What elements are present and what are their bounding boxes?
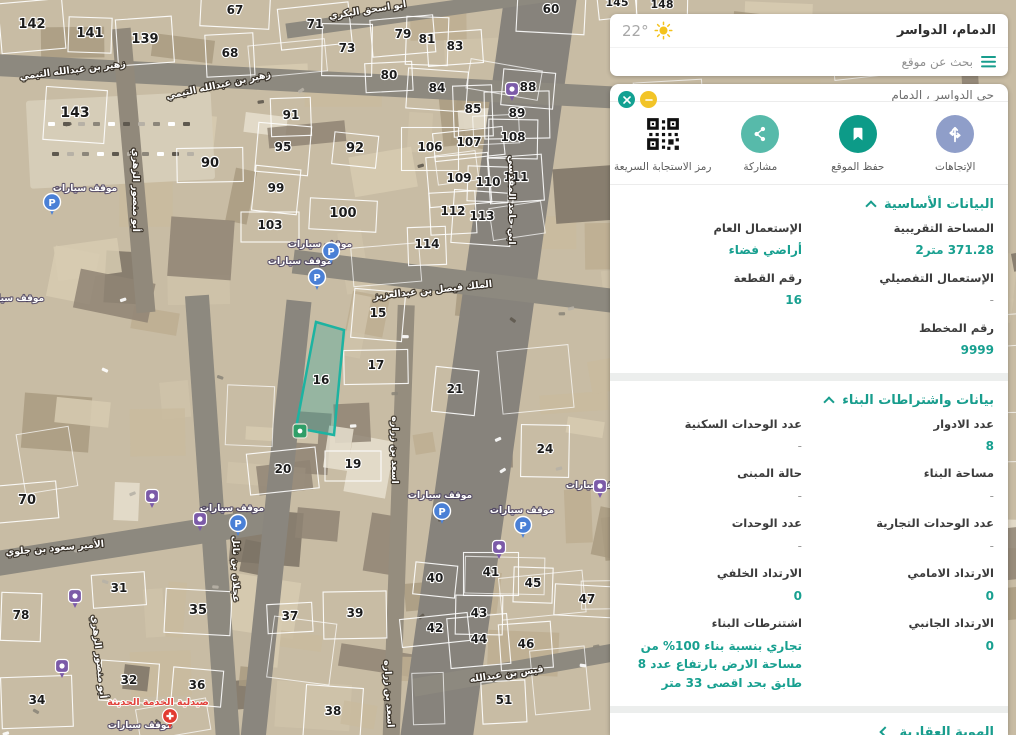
field-label: حالة المبنى [624,466,802,480]
parcel-number: 43 [471,606,488,620]
parcel-number: 85 [465,102,482,116]
parcel-number: 42 [427,621,444,635]
parking-lot-label: موقف سيارات [0,294,44,304]
close-button[interactable] [618,91,635,108]
section-title: البيانات الأساسية [884,197,994,212]
section-title: بيانات واشتراطات البناء [842,393,994,408]
action-label: مشاركة [743,161,777,174]
svg-text:P: P [438,507,445,518]
field-value: - [816,291,994,310]
data-field: اشتنرطات البناء تجاري بنسبة بناء 100% من… [624,616,802,692]
parking-lot-label: موقف سيارات [288,240,352,250]
parcel-number: 17 [368,358,385,372]
parcel-number: 109 [446,171,471,185]
bookmark-icon [839,115,877,153]
hamburger-icon [981,56,996,68]
data-field: الإستعمال العام أراضي فضاء [624,221,802,260]
app-window: 1451481421411396768143919590991037173798… [0,0,1016,735]
svg-text:P: P [234,519,241,530]
parcel-number: 36 [189,678,206,692]
parking-lot-label: موقف سيارات [53,184,117,194]
street-label: أبو منصور الزهري [130,148,143,232]
parcel-number: 83 [447,39,464,53]
parcel-number: 100 [329,206,356,221]
action-label: رمز الاستجابة السريعة [614,161,711,174]
field-value: 371.28 متر2 [816,241,994,260]
data-field: الارتداد الامامي 0 [816,566,994,605]
data-field: عدد الوحدات التجارية - [816,516,994,555]
parcel-number: 34 [29,693,46,707]
qr-icon [644,115,682,153]
field-value: 8 [816,437,994,456]
svg-text:P: P [48,198,55,209]
address-clipped: حي الدواسر ، الدمام [610,84,1008,101]
search-input[interactable]: بحث عن موقع [901,55,973,69]
parcel-number: 39 [347,606,364,620]
parcel-number: 89 [509,106,526,120]
parking-lot-label: موقف سيارات [200,504,264,514]
parcel-number: 88 [520,80,537,94]
temperature-value: 22° [622,22,649,40]
field-value: 0 [816,637,994,656]
data-field: الارتداد الجانبي 0 [816,616,994,692]
parcel-number: 81 [419,32,436,46]
parcel-number: 60 [543,2,560,16]
data-field: حالة المبنى - [624,466,802,505]
field-label: رقم القطعة [624,271,802,285]
field-value: أراضي فضاء [624,241,802,260]
search-row[interactable]: بحث عن موقع [610,47,1008,76]
action-share[interactable]: مشاركة [712,115,810,174]
parcel-number: 24 [537,442,554,456]
location-title: الدمام، الدواسر [897,23,996,38]
parcel-number: 143 [60,105,89,121]
parcel-number: 108 [500,130,525,144]
svg-text:P: P [519,521,526,532]
svg-text:P: P [327,247,334,258]
poi-pin-green[interactable] [293,424,307,438]
parcel-number: 44 [471,632,488,646]
pharmacy-label: صيدلية الخدمة الحديثة [107,697,209,708]
field-label: الارتداد الامامي [816,566,994,580]
data-field: مساحة البناء - [816,466,994,505]
parcel-number: 73 [339,41,356,55]
field-label: رقم المخطط [816,321,994,335]
map-header-card: الدمام، الدواسر 22° بحث عن موقع [610,14,1008,76]
field-value: - [816,537,994,556]
field-label: عدد الوحدات التجارية [816,516,994,530]
data-field: رقم القطعة 16 [624,271,802,310]
parcel-number: 35 [189,603,207,618]
parcel-number: 145 [606,0,629,9]
data-field: عدد الوحدات - [624,516,802,555]
parcel-number: 19 [345,457,362,471]
street-label: ابي حامد المقدسي [506,155,517,244]
parcel-number: 45 [525,576,542,590]
data-field: الإستعمال التفصيلي - [816,271,994,310]
selected-parcel-number: 16 [313,373,330,387]
parcel-number: 80 [381,68,398,82]
collapsed-section-row[interactable]: الهوية العقارية [610,713,1008,735]
parcel-number: 46 [518,637,535,651]
parcel-number: 139 [131,32,158,47]
field-value: - [816,487,994,506]
street-label: اسعد بن زراره [389,416,400,483]
parking-lot-label: موقف سيارات [268,257,332,267]
parcel-number: 40 [427,571,444,585]
field-label: الإستعمال العام [624,221,802,235]
parcel-number: 92 [346,141,364,156]
parcel-number: 79 [395,27,412,41]
field-label: الارتداد الجانبي [816,616,994,630]
field-value: 16 [624,291,802,310]
parcel-number: 32 [121,673,138,687]
street-label: عجلان بن نائل [230,536,241,603]
parcel-number: 67 [227,3,244,17]
parcel-number: 41 [483,565,500,579]
field-value: تجاري بنسبة بناء 100% من مساحة الارض بار… [624,637,802,693]
field-label: عدد الوحدات السكنية [624,417,802,431]
parcel-number: 141 [76,26,103,41]
parcel-number: 91 [283,108,300,122]
data-field: عدد الوحدات السكنية - [624,417,802,456]
data-field: الارتداد الخلفي 0 [624,566,802,605]
action-qr[interactable]: رمز الاستجابة السريعة [614,115,712,174]
parcel-number: 113 [469,209,494,223]
basic-data-section: البيانات الأساسية المساحة التقريبية 371.… [610,185,1008,373]
parcel-number: 90 [201,156,219,171]
parcel-number: 112 [440,204,465,218]
field-value: - [624,537,802,556]
weather-widget: 22° [622,21,673,40]
parcel-number: 84 [429,81,446,95]
parking-lot-label: موقف سيارات [490,506,554,516]
collapsed-section-title: الهوية العقارية [899,725,994,735]
directions-icon [936,115,974,153]
field-label: الإستعمال التفصيلي [816,271,994,285]
parking-lot-label: موقف سيارات [408,491,472,501]
parcel-number: 99 [268,181,285,195]
parking-lot-label: موقف سيارات [108,721,172,731]
field-value: 9999 [816,341,994,360]
sun-icon [654,21,673,40]
building-data-header[interactable]: بيانات واشتراطات البناء [610,381,1008,415]
field-label: اشتنرطات البناء [624,616,802,630]
chevron-left-icon [880,726,891,735]
field-label: الارتداد الخلفي [624,566,802,580]
field-label: مساحة البناء [816,466,994,480]
parcel-number: 70 [18,493,36,508]
action-directions[interactable]: الإتجاهات [907,115,1005,174]
building-data-section: بيانات واشتراطات البناء عدد الادوار 8 عد… [610,381,1008,706]
data-field: عدد الادوار 8 [816,417,994,456]
parcel-number: 51 [496,693,513,707]
parcel-number: 68 [222,46,239,60]
data-field: رقم المخطط 9999 [816,321,994,360]
share-icon [741,115,779,153]
data-field: المساحة التقريبية 371.28 متر2 [816,221,994,260]
parcel-number: 110 [475,175,500,189]
parcel-number: 71 [307,17,324,31]
parcel-number: 106 [417,140,442,154]
parcel-number: 47 [579,592,596,606]
action-label: حفظ الموقع [831,161,884,174]
chevron-up-icon [865,200,876,211]
field-value: - [624,487,802,506]
parcel-number: 78 [13,608,30,622]
basic-data-header[interactable]: البيانات الأساسية [610,185,1008,219]
parcel-number: 114 [414,237,439,251]
parcel-number: 15 [370,306,387,320]
parcel-number: 142 [18,17,45,32]
parcel-number: 103 [257,218,282,232]
field-label: عدد الوحدات [624,516,802,530]
field-value: - [624,437,802,456]
field-value: 0 [624,587,802,606]
parcel-number: 38 [325,704,342,718]
parcel-number: 95 [275,140,292,154]
parcel-number: 107 [456,135,481,149]
action-save-location[interactable]: حفظ الموقع [809,115,907,174]
parcel-number: 31 [111,581,128,595]
field-label: عدد الادوار [816,417,994,431]
parcel-number: 21 [447,382,464,396]
parcel-detail-panel: حي الدواسر ، الدمام الإتجاهات حفظ الموقع… [610,84,1008,735]
parcel-number: 37 [282,609,299,623]
parcel-number: 20 [275,462,292,476]
action-buttons-row: الإتجاهات حفظ الموقع مشاركة رمز الاستجاب… [610,102,1008,184]
field-label: المساحة التقريبية [816,221,994,235]
chevron-up-icon [824,396,835,407]
parcel-number: 148 [651,0,674,11]
svg-text:P: P [313,273,320,284]
field-value: 0 [816,587,994,606]
action-label: الإتجاهات [935,161,975,174]
minimize-button[interactable] [640,91,657,108]
